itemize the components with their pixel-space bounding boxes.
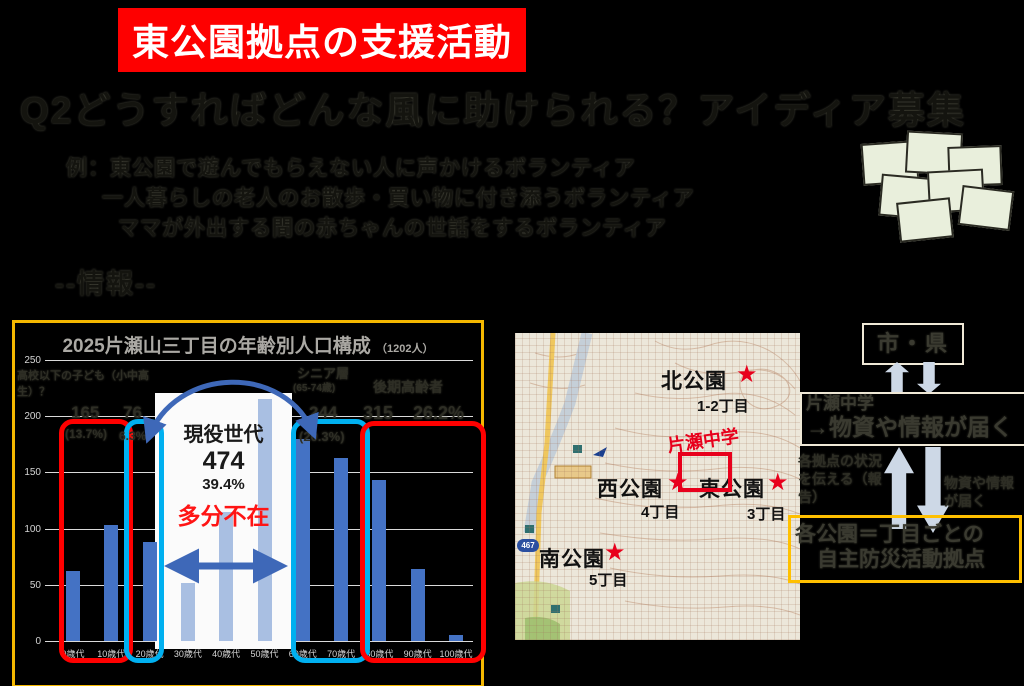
group-box-elder (360, 421, 486, 663)
population-chart: 2025片瀬山三丁目の年齢別人口構成 （1202人） 0501001502002… (12, 320, 484, 686)
bar-40歳代 (219, 512, 233, 641)
district-label: 3丁目 (747, 503, 785, 524)
district-label: 4丁目 (641, 501, 679, 522)
elder-value: 315 (363, 403, 393, 424)
elder-label: 後期高齢者 (373, 377, 443, 397)
district-label: 1-2丁目 (697, 395, 749, 416)
y-axis-label: 150 (17, 467, 41, 478)
district-label: 5丁目 (589, 569, 627, 590)
chart-title-text: 2025片瀬山三丁目の年齢別人口構成 (62, 336, 370, 357)
group-box-kids (59, 419, 133, 663)
y-axis-label: 200 (17, 411, 41, 422)
active-note: 多分不在 (155, 497, 292, 531)
down-arrow-icon (917, 362, 941, 394)
example-line: 例：東公園で遊んでもらえない人に声かけるボランティア (66, 152, 636, 182)
x-axis-label: 50歳代 (246, 647, 284, 660)
y-axis-label: 100 (17, 524, 41, 535)
students-value: 76 (123, 403, 142, 423)
park-label-4丁目: 西公園 (597, 473, 663, 503)
gridline (45, 360, 473, 361)
example-line: 一人暮らしの老人のお散歩・買い物に付き添うボランティア (102, 182, 695, 212)
park-label-1-2丁目: 北公園 (661, 365, 727, 395)
city-prefecture-box: 市・県 (862, 323, 964, 365)
bar-30歳代 (181, 583, 195, 641)
active-generation-callout: 現役世代 474 39.4% 多分不在 (155, 418, 292, 531)
sticky-note (896, 197, 954, 242)
example-line: ママが外出する間の赤ちゃんの世話をするボランティア (118, 212, 667, 242)
school-hub-box: 片瀬中学 →物資や情報が届く (800, 392, 1024, 446)
active-label: 現役世代 (155, 418, 292, 447)
students-percent: 6.3% (119, 429, 146, 443)
park-base-box: 各公園＝丁目ごとの 自主防災活動拠点 (788, 515, 1022, 583)
up-arrow-icon (885, 362, 909, 394)
senior-age-range: (65-74歳) (293, 379, 335, 394)
slide: 東公園拠点の支援活動 Q2どうすればどんな風に助けられる？アイディア募集 例：東… (0, 0, 1024, 686)
star-icon: ★ (604, 541, 626, 565)
senior-value: 244 (309, 403, 337, 423)
route-467-shield: 467 (517, 539, 539, 552)
y-axis-label: 50 (17, 580, 41, 591)
elder-percent: 26.2% (413, 403, 464, 424)
active-percent: 39.4% (155, 476, 292, 493)
x-axis-label: 40歳代 (207, 647, 245, 660)
school-hub-desc: →物資や情報が届く (806, 414, 1024, 440)
kids-value: 165 (71, 403, 99, 423)
sticky-note (958, 185, 1014, 231)
star-icon: ★ (736, 363, 758, 387)
y-axis-label: 250 (17, 355, 41, 366)
y-axis-label: 0 (17, 636, 41, 647)
kids-label: 高校以下の子ども（小中高生）？ (17, 367, 177, 399)
group-box-senior (291, 419, 370, 663)
question-heading: Q2どうすればどんな風に助けられる？アイディア募集 (20, 80, 966, 134)
star-icon: ★ (767, 471, 789, 495)
park-base-line1: 各公園＝丁目ごとの (791, 522, 1019, 547)
school-hub-name: 片瀬中学 (806, 394, 1024, 414)
report-up-label: 各拠点の状況を伝える（報告） (798, 452, 884, 506)
senior-percent: (20.3%) (299, 429, 345, 444)
kids-percent: (13.7%) (65, 427, 107, 441)
park-base-line2: 自主防災活動拠点 (791, 547, 1019, 572)
active-value: 474 (155, 447, 292, 476)
chart-title-suffix: （1202人） (376, 343, 433, 355)
school-highlight-box (678, 452, 732, 492)
x-axis-label: 30歳代 (169, 647, 207, 660)
supply-down-label: 物資や情報が届く (944, 474, 1022, 510)
katase-area-map: 北公園★1-2丁目西公園★4丁目東公園★3丁目南公園★5丁目 片瀬中学 467 (515, 333, 800, 640)
chart-title: 2025片瀬山三丁目の年齢別人口構成 （1202人） (15, 331, 481, 358)
section-label: --情報-- (55, 262, 157, 301)
title-banner: 東公園拠点の支援活動 (118, 8, 526, 72)
